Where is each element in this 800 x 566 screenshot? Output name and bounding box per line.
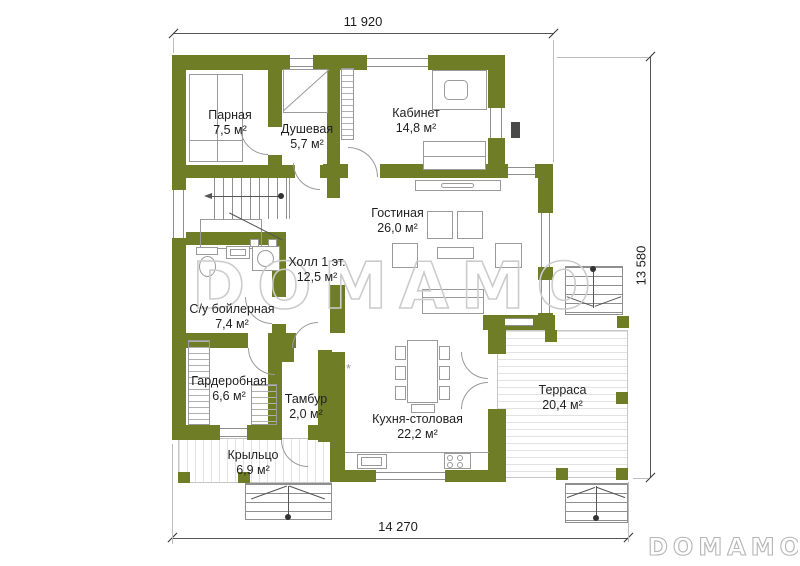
room-label-su: С/у бойлерная 7,4 м²: [172, 302, 292, 332]
wall: [323, 164, 348, 178]
window: [508, 167, 535, 175]
wall: [488, 138, 505, 166]
extension-line: [173, 38, 174, 53]
extension-line: [553, 40, 554, 162]
terrace-post: [556, 468, 568, 480]
staircase-edge: [289, 178, 290, 219]
room-area: 2,0 м²: [262, 407, 350, 422]
door-arc-dushevaya: [293, 163, 320, 190]
dining-chair: [395, 366, 406, 380]
window: [376, 472, 445, 480]
wall: [282, 348, 294, 362]
room-area: 7,4 м²: [172, 317, 292, 332]
dimension-line-top: [173, 33, 553, 34]
kitchen-marker: *: [346, 363, 351, 375]
wall: [172, 425, 220, 440]
extension-line: [628, 482, 629, 542]
dining-chair: [395, 346, 406, 360]
room-area: 22,2 м²: [350, 427, 485, 442]
wall: [445, 470, 503, 482]
stove-burner: [457, 455, 463, 461]
wall-pier: [511, 122, 520, 138]
room-area: 5,7 м²: [262, 137, 352, 152]
room-name: Парная: [180, 108, 280, 123]
dimension-label-bottom: 14 270: [318, 519, 478, 534]
tv: [441, 183, 474, 188]
wall: [313, 55, 367, 70]
room-name: Гостиная: [330, 206, 465, 221]
dining-chair: [395, 386, 406, 400]
porch-post: [178, 472, 190, 483]
brand-logo-text: DOMAMO: [648, 533, 798, 561]
room-name: Душевая: [262, 122, 352, 137]
stove-burner: [447, 462, 453, 468]
sofa-line: [423, 156, 486, 157]
dining-chair: [439, 386, 450, 400]
room-name: С/у бойлерная: [172, 302, 292, 317]
window: [290, 58, 313, 67]
room-label-gostinaya: Гостиная 26,0 м²: [330, 206, 465, 236]
room-name: Тамбур: [262, 392, 350, 407]
floor-plan: * DOMAMO DOMAMO 11 920 13 580 14 270 Пар…: [0, 0, 800, 566]
room-label-kuhnya: Кухня-столовая 22,2 м²: [350, 412, 485, 442]
dining-table: [407, 340, 438, 403]
room-name: Кабинет: [366, 106, 466, 121]
desk-chair: [444, 80, 468, 100]
sauna-bench-line: [189, 140, 243, 141]
room-label-kabinet: Кабинет 14,8 м²: [366, 106, 466, 136]
room-name: Гардеробная: [170, 374, 288, 389]
room-label-holl: Холл 1 эт. 12,5 м²: [262, 255, 372, 285]
stove-burner: [457, 462, 463, 468]
brand-logo: DOMAMO: [646, 531, 798, 563]
stove-burner: [447, 455, 453, 461]
room-area: 26,0 м²: [330, 221, 465, 236]
dimension-label-right: 13 580: [634, 227, 649, 305]
window: [490, 108, 502, 138]
extension-line: [633, 478, 649, 479]
room-label-terrasa: Терраса 20,4 м²: [515, 383, 610, 413]
room-name: Кухня-столовая: [350, 412, 485, 427]
wall: [308, 425, 332, 440]
wall: [172, 333, 248, 348]
terrace-steps-arrow-dot: [593, 515, 599, 521]
dining-chair: [439, 366, 450, 380]
door-arc-garderobnaya: [248, 348, 275, 375]
dining-chair: [439, 346, 450, 360]
room-label-kryltso: Крыльцо 6,9 м²: [198, 448, 308, 478]
room-label-tambur: Тамбур 2,0 м²: [262, 392, 350, 422]
staircase-arrow: [210, 196, 282, 197]
wall: [538, 164, 553, 213]
room-area: 6,9 м²: [198, 463, 308, 478]
porch-steps-arrow-dot: [285, 514, 291, 520]
dimension-line-bottom: [172, 538, 628, 539]
staircase-arrow-head: [204, 193, 212, 199]
terrace-post: [616, 468, 628, 480]
dimension-line-right: [650, 57, 651, 478]
window: [173, 190, 184, 238]
door-arc-terrace-right: [461, 382, 488, 409]
room-area: 20,4 м²: [515, 398, 610, 413]
wall: [247, 425, 281, 440]
window: [367, 58, 428, 67]
room-area: 12,5 м²: [262, 270, 372, 285]
door-arc-kabinet: [348, 147, 378, 177]
wall: [488, 55, 505, 108]
window: [220, 428, 247, 437]
room-name: Холл 1 эт.: [262, 255, 372, 270]
room-name: Терраса: [515, 383, 610, 398]
dimension-label-top: 11 920: [283, 14, 443, 29]
staircase-arrow-dot: [278, 193, 284, 199]
wall: [172, 55, 290, 70]
extension-line: [557, 57, 649, 58]
wall: [186, 165, 295, 178]
door-arc-terrace-left: [461, 352, 488, 379]
kitchen-sink-basin: [361, 457, 382, 466]
extension-line: [172, 444, 173, 544]
room-label-dushevaya: Душевая 5,7 м²: [262, 122, 352, 152]
terrace-post: [616, 392, 628, 404]
room-area: 14,8 м²: [366, 121, 466, 136]
room-name: Крыльцо: [198, 448, 308, 463]
